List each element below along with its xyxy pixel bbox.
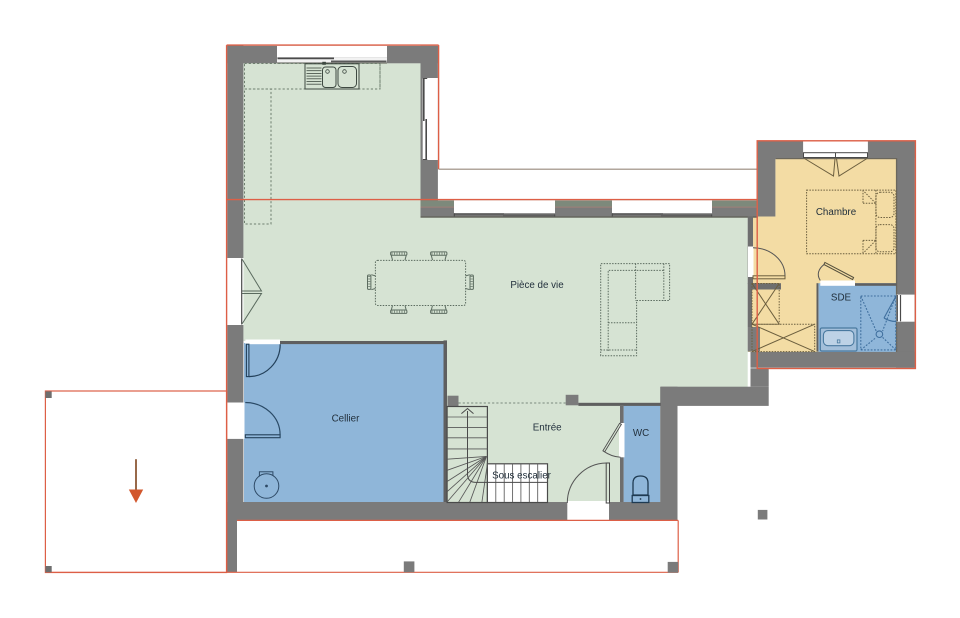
svg-text:Entrée: Entrée <box>533 423 562 434</box>
svg-text:Sous escalier: Sous escalier <box>492 471 552 482</box>
svg-text:SDE: SDE <box>831 293 852 304</box>
svg-text:Chambre: Chambre <box>816 207 857 218</box>
svg-text:Pièce de vie: Pièce de vie <box>510 280 564 291</box>
svg-text:Cellier: Cellier <box>332 414 361 425</box>
svg-text:WC: WC <box>633 428 649 439</box>
